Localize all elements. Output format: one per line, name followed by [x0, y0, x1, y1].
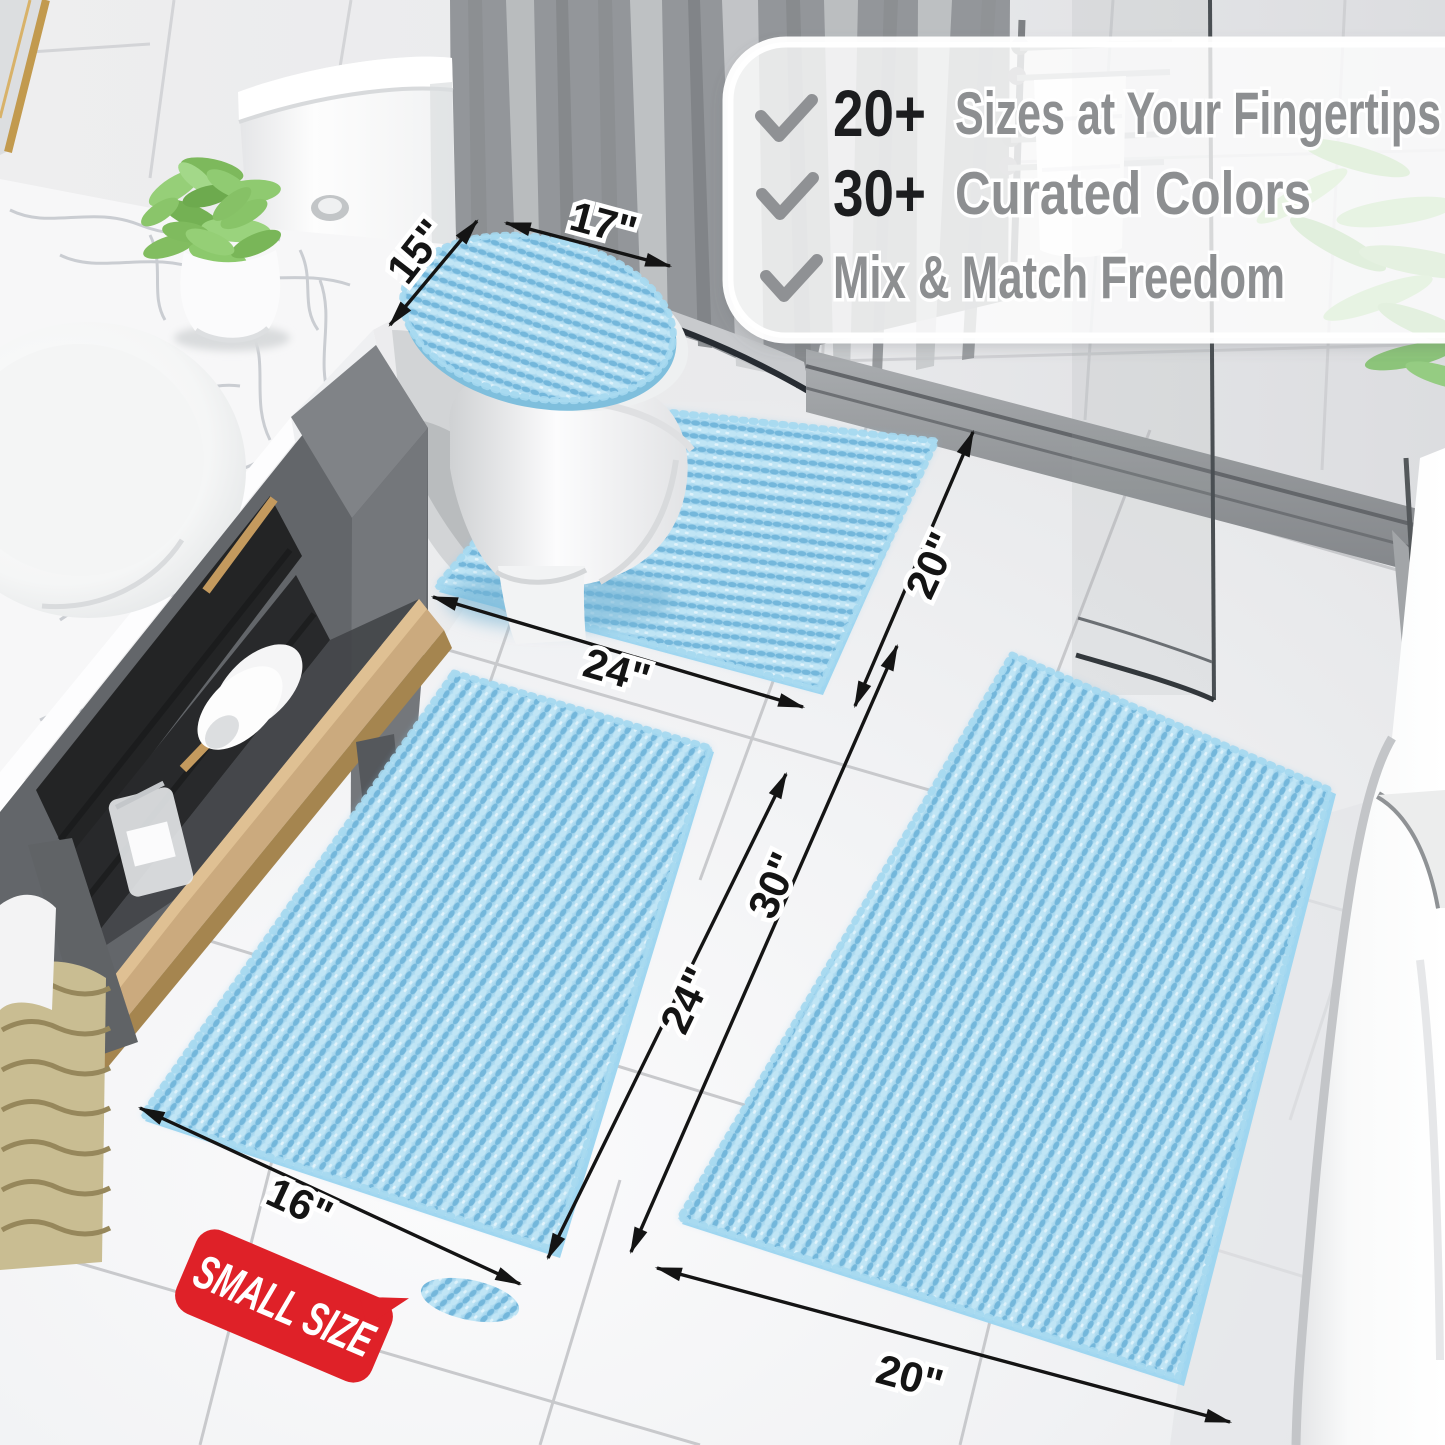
- svg-text:Curated Colors: Curated Colors: [955, 160, 1311, 227]
- svg-text:30+: 30+: [833, 156, 926, 230]
- svg-text:Mix & Match Freedom: Mix & Match Freedom: [833, 244, 1285, 311]
- svg-text:20+: 20+: [833, 76, 926, 150]
- svg-text:Sizes at Your Fingertips: Sizes at Your Fingertips: [955, 80, 1441, 147]
